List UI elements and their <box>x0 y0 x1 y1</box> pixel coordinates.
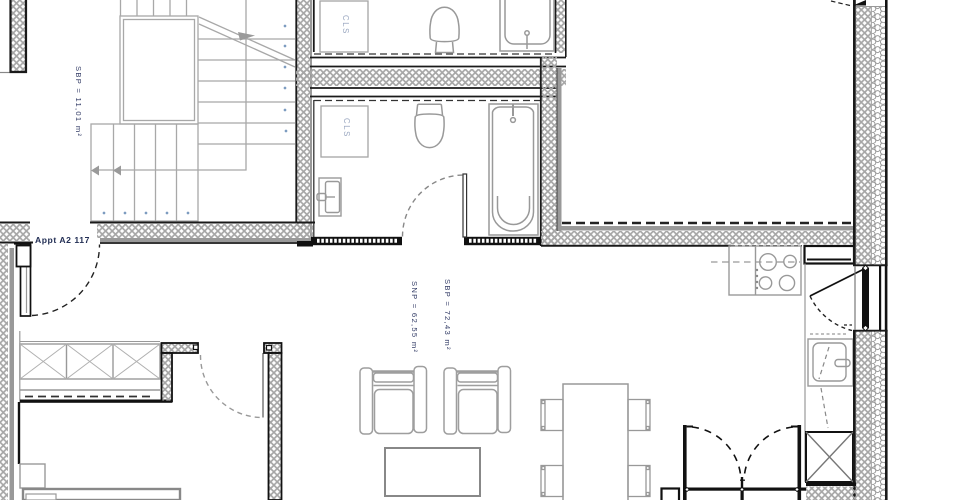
svg-text:SNP = 62,55 m²: SNP = 62,55 m² <box>410 281 419 353</box>
svg-text:SBP = 11,01 m²: SBP = 11,01 m² <box>74 66 83 137</box>
svg-text:Appt A2 117: Appt A2 117 <box>35 235 90 245</box>
svg-text:CLS: CLS <box>342 118 351 138</box>
svg-text:CLS: CLS <box>341 15 350 35</box>
svg-text:SBP = 72,43 m²: SBP = 72,43 m² <box>443 279 452 351</box>
